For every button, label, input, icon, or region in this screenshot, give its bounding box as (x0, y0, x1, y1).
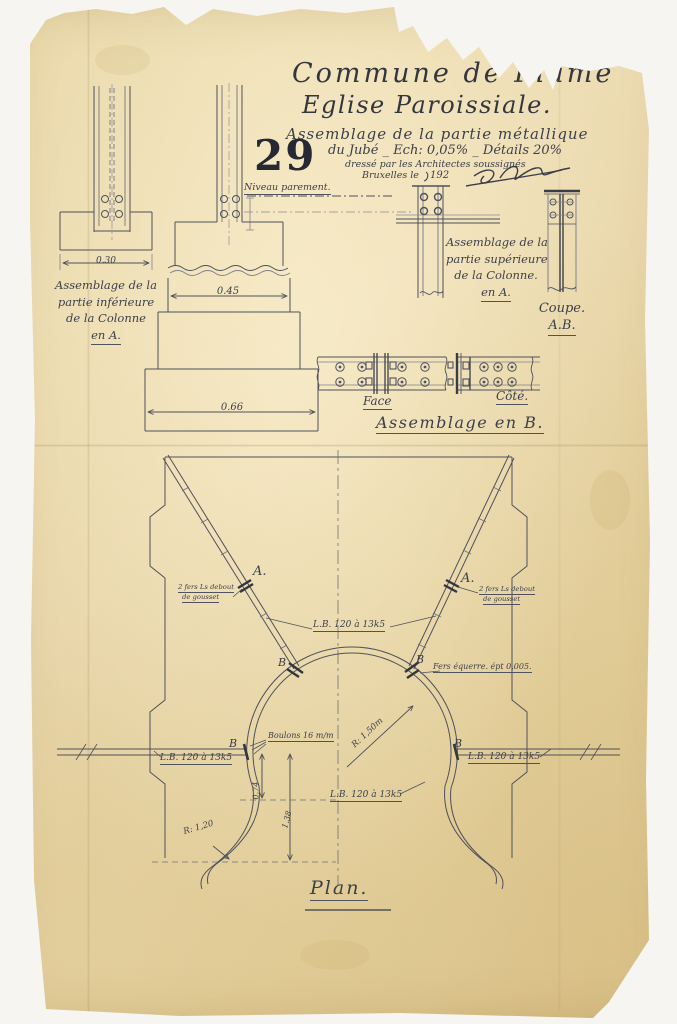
plan-title: Plan. (310, 878, 368, 900)
marker-b-lower-right: B (454, 738, 462, 751)
marker-a-left: A. (253, 565, 267, 580)
lb-label-right: L.B. 120 à 13k5 (468, 752, 540, 762)
splice-cote-view (448, 353, 540, 394)
marker-b-upper-right: B (416, 654, 424, 667)
face-label: Face (363, 395, 392, 409)
scanned-drawing-page: Commune de Flame Eglise Paroissiale. Ass… (0, 0, 677, 1024)
sheet-number-stamp: 29 (254, 132, 316, 180)
subtitle-line2: du Jubé _ Ech: 0,05% _ Détails 20% (328, 144, 562, 159)
column-base-side-view (60, 84, 152, 270)
lb-label-center: L.B. 120 à 13k5 (313, 620, 385, 630)
page-title-line2: Eglise Paroissiale. (302, 92, 552, 120)
caption-partie-superieure: Assemblage de la partie supérieure de la… (446, 234, 546, 302)
plan-title-underline2 (305, 909, 391, 911)
subtitle-line1: Assemblage de la partie métallique (286, 126, 588, 143)
dim-0-30: 0.30 (86, 256, 126, 266)
plan-drawing (57, 450, 620, 889)
assemblage-en-b-label: Assemblage en B. (376, 414, 544, 432)
splice-face-view (317, 353, 447, 394)
dim-0-74: 0.74 (251, 773, 260, 809)
lb-label-mid-lower: L.B. 120 à 13k5 (330, 790, 402, 800)
caption-partie-inferieure: Assemblage de la partie inférieure de la… (50, 277, 162, 345)
aged-paper-sheet: Commune de Flame Eglise Paroissiale. Ass… (0, 0, 677, 1024)
marker-a-right: A. (461, 572, 475, 587)
coupe-ab-section (544, 191, 580, 292)
archive-number: 359 (20, 994, 44, 1009)
subtitle-year: 192 (430, 170, 449, 182)
page-title-line1: Commune de Flame (292, 58, 614, 89)
note-fers-right: 2 fers Ls debout de gousset (479, 584, 535, 604)
boulons-label: Boulons 16 m/m (268, 731, 334, 740)
marker-b-upper-left: B (278, 657, 286, 670)
dim-0-66: 0.66 (212, 402, 252, 414)
cote-label: Côté. (496, 390, 528, 404)
lb-label-left: L.B. 120 à 13k5 (160, 753, 232, 763)
fers-equerre-label: Fers équerre. épt 0,005. (433, 662, 532, 671)
dim-0-45: 0.45 (208, 286, 248, 298)
note-fers-left: 2 fers Ls debout de gousset (178, 582, 234, 602)
marker-b-lower-left: B (229, 738, 237, 751)
caption-coupe-ab: Coupe. A.B. (530, 301, 594, 336)
niveau-parement-label: Niveau parement. (244, 183, 331, 194)
subtitle-place-date: Bruxelles le (362, 171, 419, 182)
